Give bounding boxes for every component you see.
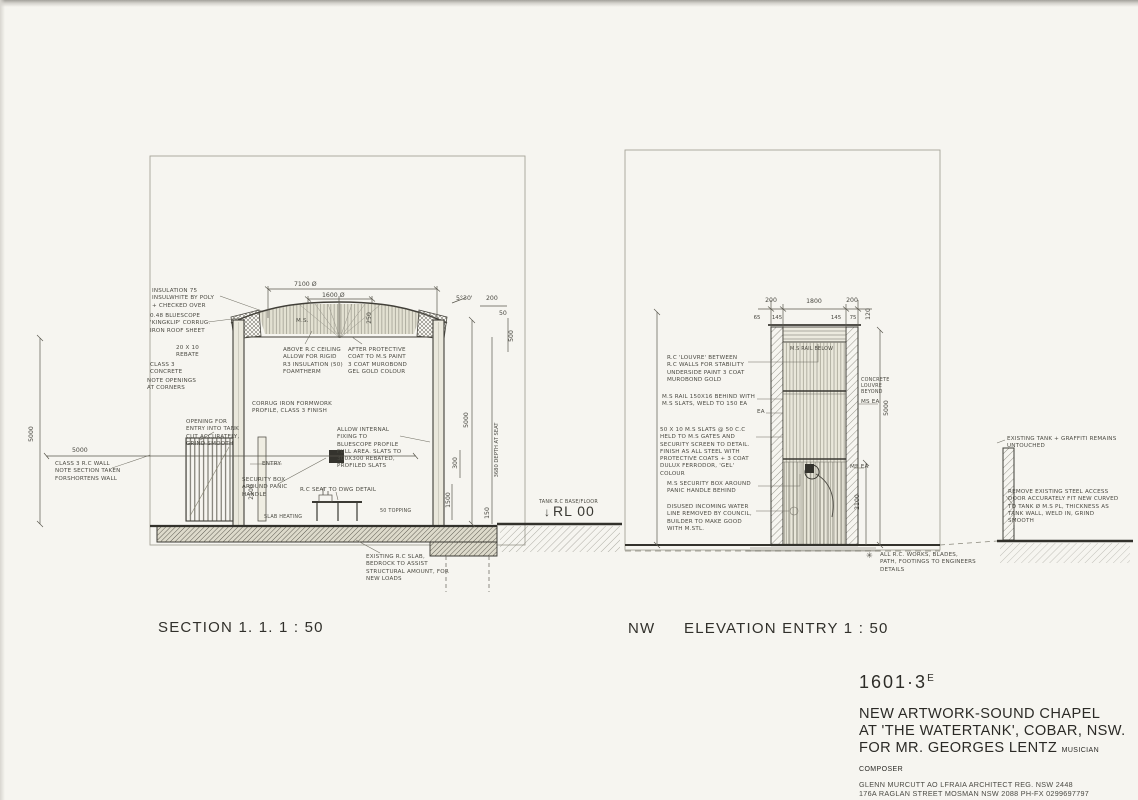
dim-250: 250 — [366, 312, 373, 324]
note-corners: NOTE OPENINGS AT CORNERS — [147, 378, 197, 393]
note-ms-ea-2: MS EA — [850, 464, 880, 471]
drawing-sheet: 7100 Ø 1600 Ø 250 5°30' 200 50 500 5000 … — [0, 0, 1138, 800]
dim-200-left: 200 — [765, 297, 777, 304]
dim-120: 120 — [865, 308, 872, 320]
dim-1600: 1600 Ø — [322, 291, 345, 299]
dim-200-right: 200 — [846, 297, 858, 304]
sheet-number-value: 1601·3 — [859, 672, 927, 692]
elevation-structure — [768, 325, 861, 545]
dim-5000-width: 5000 — [72, 447, 88, 454]
note-louvre-beyond: CONCRETE LOUVRE BEYOND — [861, 377, 903, 395]
dim-75: 75 — [850, 315, 857, 321]
note-security-behind: M.S SECURITY BOX AROUND PANIC HANDLE BEH… — [667, 481, 759, 496]
dim-145-right: 145 — [831, 315, 841, 321]
note-entry: ENTRY — [262, 461, 292, 468]
note-rebate: 20 X 10 REBATE — [176, 345, 220, 360]
dim-1500: 1500 — [445, 492, 452, 508]
dim-5000-left: 5000 — [28, 426, 35, 442]
note-insulation: INSULATION 75 INSULWHITE BY POLY + CHECK… — [152, 288, 218, 310]
sheet-number: 1601·3E — [859, 672, 1129, 693]
note-ceiling: ABOVE R.C CEILING ALLOW FOR RIGID R3 INS… — [283, 347, 345, 376]
title-block: 1601·3E NEW ARTWORK-SOUND CHAPEL AT 'THE… — [859, 672, 1129, 800]
rl-datum: ↓RL 00 — [544, 503, 595, 519]
project-title-line1: NEW ARTWORK-SOUND CHAPEL — [859, 706, 1129, 723]
dim-300: 300 — [452, 457, 459, 469]
note-topping: 50 TOPPING — [380, 508, 422, 514]
dim-angle: 5°30' — [456, 294, 473, 302]
sheet-revision: E — [927, 673, 934, 684]
section-roof — [231, 296, 447, 339]
note-existing-slab: EXISTING R.C SLAB, BEDROCK TO ASSIST STR… — [366, 554, 454, 583]
note-roof-sheet: 0.48 BLUESCOPE 'KINGKLIP' CORRUG. IRON R… — [150, 313, 212, 335]
dim-145-left: 145 — [772, 315, 782, 321]
elevation-label: ELEVATION ENTRY 1 : 50 — [684, 620, 889, 637]
dim-7100: 7100 Ø — [294, 280, 317, 288]
note-slab-heating: SLAB HEATING — [264, 514, 308, 520]
note-formwork: CORRUG IRON FORMWORK PROFILE, CLASS 3 FI… — [252, 401, 332, 416]
note-rc-seat: R.C SEAT TO DWG DETAIL — [300, 487, 394, 494]
down-arrow-icon: ↓ — [544, 505, 551, 519]
project-title: NEW ARTWORK-SOUND CHAPEL AT 'THE WATERTA… — [859, 706, 1129, 778]
project-title-line2: AT 'THE WATERTANK', COBAR, NSW. — [859, 723, 1129, 740]
dim-2100-elev: 2100 — [854, 494, 861, 510]
elevation-nw-label: NW — [628, 620, 655, 637]
rl-value: RL 00 — [553, 503, 595, 519]
note-louvre: R.C 'LOUVRE' BETWEEN R.C WALLS FOR STABI… — [667, 355, 749, 384]
client-name: FOR MR. GEORGES LENTZ — [859, 740, 1057, 756]
architect-line2: 176A RAGLAN STREET MOSMAN NSW 2088 PH-FX… — [859, 790, 1129, 799]
note-ea: EA — [757, 409, 777, 416]
dim-65: 65 — [754, 315, 761, 321]
note-graffiti: EXISTING TANK + GRAFFITI REMAINS UNTOUCH… — [1007, 436, 1119, 451]
dim-50: 50 — [499, 310, 507, 317]
asterisk-icon: ✳ — [866, 551, 878, 561]
architect-credit: GLENN MURCUTT AO LFRAIA ARCHITECT REG. N… — [859, 781, 1129, 800]
note-opening: OPENING FOR ENTRY INTO TANK CUT ACCURATE… — [186, 419, 246, 448]
dim-1800: 1800 — [806, 298, 822, 305]
note-internal-fixing: ALLOW INTERNAL FIXING TO BLUESCOPE PROFI… — [337, 427, 403, 471]
note-water-line: DISUSED INCOMING WATER LINE REMOVED BY C… — [667, 504, 759, 533]
note-concrete: CLASS 3 CONCRETE — [150, 362, 208, 377]
note-slats: 50 X 10 M.S SLATS @ 50 C.C HELD TO M.S G… — [660, 427, 756, 478]
note-access-door: REMOVE EXISTING STEEL ACCESS DOOR ACCURA… — [1008, 489, 1122, 525]
note-class3-wall: CLASS 3 R.C WALL NOTE SECTION TAKEN FORS… — [55, 461, 125, 483]
dim-500: 500 — [508, 330, 515, 342]
note-engineer: ALL R.C. WORKS, BLADES, PATH, FOOTINGS T… — [880, 552, 976, 574]
section-label: SECTION 1. 1. 1 : 50 — [158, 619, 324, 636]
note-ms-ea-1: MS EA — [861, 399, 891, 406]
project-title-line3: FOR MR. GEORGES LENTZ MUSICIAN COMPOSER — [859, 740, 1129, 778]
dim-200: 200 — [486, 295, 498, 302]
note-security-box: SECURITY BOX AROUND PANIC HANDLE — [242, 477, 304, 499]
note-rail: M.S RAIL 150X16 BEHIND WITH M.S SLATS, W… — [662, 394, 758, 409]
note-ms: M.S. — [296, 318, 316, 325]
dim-150: 150 — [484, 507, 491, 519]
dim-5000-int: 5000 — [463, 412, 470, 428]
note-protective: AFTER PROTECTIVE COAT TO M.S PAINT 3 COA… — [348, 347, 410, 376]
note-rail-below: M.S RAIL BELOW — [790, 346, 844, 352]
dim-depth-seat: 3680 DEPTH AT SEAT — [494, 422, 500, 478]
